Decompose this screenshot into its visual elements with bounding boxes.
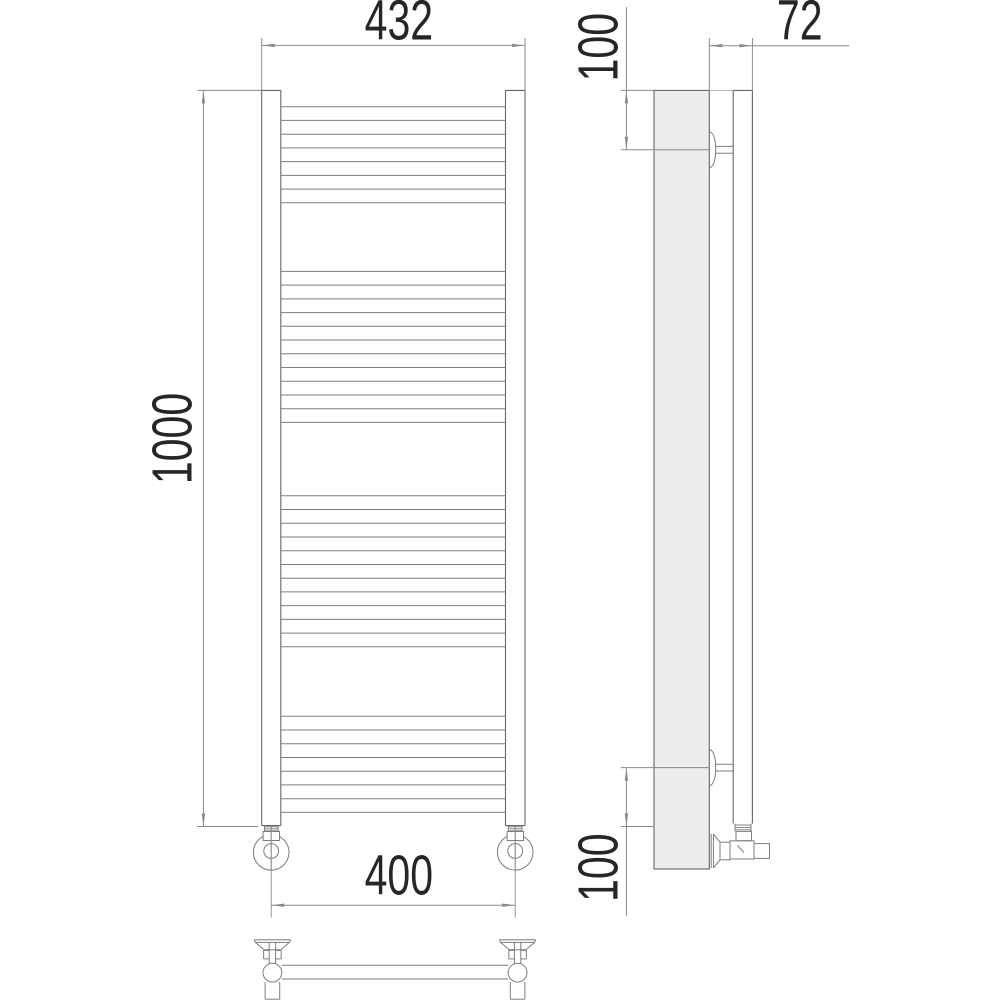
svg-text:432: 432 — [365, 0, 433, 52]
svg-text:100: 100 — [566, 833, 630, 901]
svg-text:1000: 1000 — [140, 393, 204, 484]
svg-text:72: 72 — [777, 0, 823, 52]
svg-text:100: 100 — [566, 13, 630, 81]
svg-text:400: 400 — [365, 843, 433, 907]
